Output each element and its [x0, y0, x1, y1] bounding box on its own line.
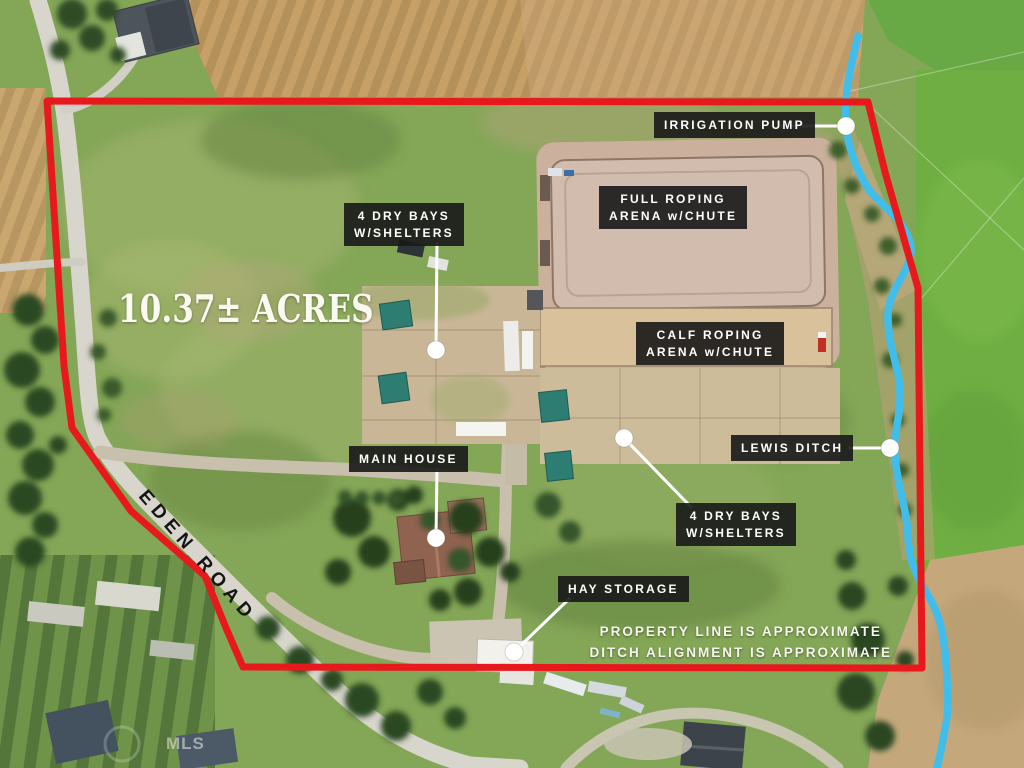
small-shed [527, 290, 543, 310]
label-lewis-ditch: LEWIS DITCH [731, 435, 853, 461]
label-text-line2: ARENA w/CHUTE [609, 209, 737, 223]
label-text-line1: CALF ROPING [657, 328, 764, 342]
label-text-line1: FULL ROPING [620, 192, 725, 206]
shelter-shed [539, 390, 570, 423]
label-text-line1: 4 DRY BAYS [690, 509, 782, 523]
dry-bays-north-leader [436, 242, 437, 350]
label-text-line2: W/SHELTERS [686, 526, 786, 540]
irrigation-pump-marker [837, 117, 855, 135]
shelter-shed [378, 372, 410, 404]
disclaimer-line1: PROPERTY LINE IS APPROXIMATE [600, 624, 882, 639]
label-text: IRRIGATION PUMP [664, 118, 805, 132]
label-dry-bays-south: 4 DRY BAYS W/SHELTERS [676, 503, 796, 546]
label-hay-storage: HAY STORAGE [558, 576, 689, 602]
white-trailer [503, 321, 520, 371]
disclaimer-text: PROPERTY LINE IS APPROXIMATE DITCH ALIGN… [590, 621, 893, 663]
label-full-roping-arena: FULL ROPING ARENA w/CHUTE [599, 186, 747, 229]
label-text-line1: 4 DRY BAYS [358, 209, 450, 223]
main-house-marker [427, 529, 445, 547]
label-calf-roping-arena: CALF ROPING ARENA w/CHUTE [636, 322, 784, 365]
disclaimer-line2: DITCH ALIGNMENT IS APPROXIMATE [590, 645, 893, 660]
dry-bays-north-marker [427, 341, 445, 359]
white-bus [456, 422, 506, 436]
label-text: LEWIS DITCH [741, 441, 843, 455]
label-text-line2: ARENA w/CHUTE [646, 345, 774, 359]
hay-storage-marker [505, 643, 523, 661]
aerial-property-photo: IRRIGATION PUMP FULL ROPING ARENA w/CHUT… [0, 0, 1024, 768]
label-main-house: MAIN HOUSE [349, 446, 468, 472]
label-dry-bays-north: 4 DRY BAYS W/SHELTERS [344, 203, 464, 246]
label-text: HAY STORAGE [568, 582, 679, 596]
shelter-shed [545, 451, 574, 482]
dry-bays-south-marker [615, 429, 633, 447]
white-trailer [522, 331, 533, 369]
acreage-text: 10.37± ACRES [118, 286, 374, 331]
field-west-strip [0, 88, 46, 313]
lewis-ditch-marker [881, 439, 899, 457]
main-house-leader [436, 468, 437, 538]
plowed-field-north [175, 0, 865, 97]
mls-watermark: MLS [166, 734, 205, 754]
label-irrigation-pump: IRRIGATION PUMP [654, 112, 815, 138]
label-text-line2: W/SHELTERS [354, 226, 454, 240]
label-text: MAIN HOUSE [359, 452, 458, 466]
shelter-shed [379, 300, 412, 330]
